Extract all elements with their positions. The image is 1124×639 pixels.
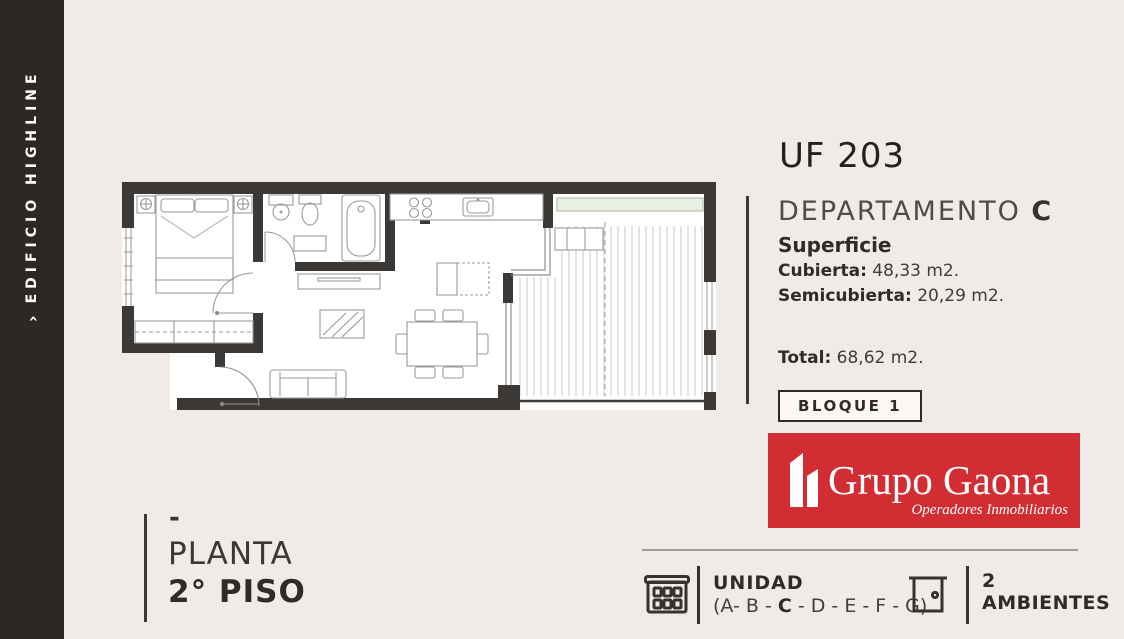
unit-code: UF 203: [779, 136, 905, 176]
info-vertical-rule: [746, 196, 749, 404]
building-name-label: EDIFICIO HIGHLINE: [24, 69, 40, 303]
bloque-badge: BLOQUE 1: [778, 390, 922, 422]
surface-row-cubierta: Cubierta: 48,33 m2.: [778, 261, 959, 281]
unit-type: DEPARTAMENTO C: [778, 196, 1053, 227]
unidad-selected: C: [778, 595, 792, 617]
semicubierta-label: Semicubierta:: [778, 286, 912, 306]
chevron-right-icon: ›: [23, 315, 42, 322]
building-name-vertical: › EDIFICIO HIGHLINE: [0, 22, 64, 322]
cubierta-label: Cubierta:: [778, 261, 867, 281]
logo-name: Grupo Gaona: [828, 460, 1050, 500]
bath-cabinet: [294, 236, 326, 251]
surface-title: Superficie: [778, 233, 892, 257]
building-icon: [644, 574, 690, 616]
surface-row-semicubierta: Semicubierta: 20,29 m2.: [778, 286, 1004, 306]
unidad-title: UNIDAD: [713, 572, 804, 594]
floor-plan-svg: [122, 182, 716, 424]
floor-plan: [122, 182, 716, 424]
logo-tagline: Operadores Inmobiliarios: [911, 502, 1068, 519]
logo-texts: Grupo Gaona Operadores Inmobiliarios: [822, 442, 1080, 519]
unit-type-letter: C: [1031, 196, 1053, 227]
cubierta-value: 48,33 m2.: [867, 261, 959, 281]
grupo-gaona-logo[interactable]: Grupo Gaona Operadores Inmobiliarios: [768, 433, 1080, 528]
floor-dash: -: [169, 503, 180, 533]
ambientes-count: 2: [982, 570, 995, 592]
semicubierta-value: 20,29 m2.: [912, 286, 1004, 306]
unit-type-label: DEPARTAMENTO: [778, 196, 1031, 227]
floor-line1: PLANTA: [168, 536, 293, 572]
floor-line2: 2° PISO: [168, 574, 306, 610]
floor-vertical-rule: [144, 514, 147, 622]
rug: [320, 310, 364, 338]
total-value: 68,62 m2.: [831, 348, 923, 368]
unidad-options: (A- B - C - D - E - F - G): [713, 595, 927, 617]
footer-divider: [642, 549, 1078, 551]
ambientes-label: AMBIENTES: [982, 592, 1110, 614]
bathtub: [342, 195, 380, 261]
footer-separator-1: [697, 566, 700, 624]
total-label: Total:: [778, 348, 831, 368]
surface-total: Total: 68,62 m2.: [778, 348, 924, 368]
page: › EDIFICIO HIGHLINE: [0, 0, 1124, 639]
door-icon: [906, 573, 950, 617]
buildings-icon: [788, 449, 822, 507]
balcony-planter: [557, 198, 703, 211]
sofa: [270, 370, 346, 398]
balcony-lounger: [555, 228, 603, 250]
footer-separator-2: [966, 566, 969, 624]
sidebar: › EDIFICIO HIGHLINE: [0, 0, 64, 639]
unidad-prefix: (A- B -: [713, 595, 778, 617]
